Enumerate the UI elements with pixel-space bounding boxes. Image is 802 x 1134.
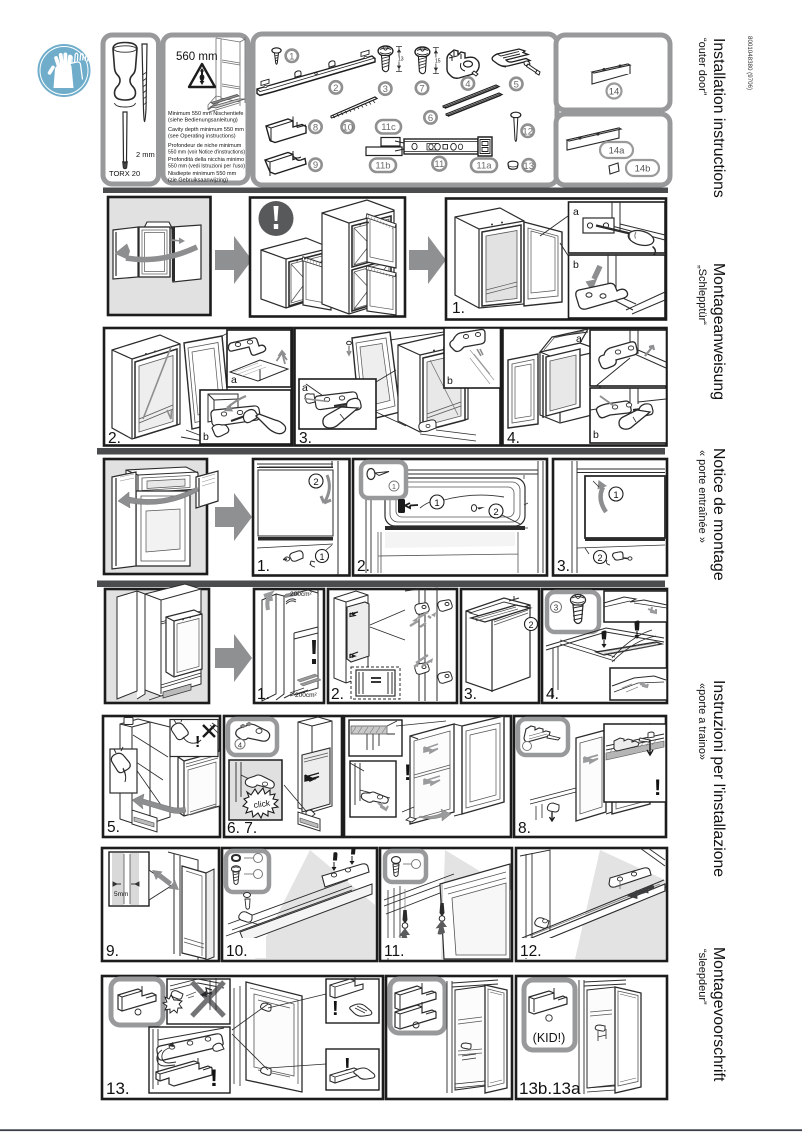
svg-text:8001048380 (9706): 8001048380 (9706) xyxy=(746,36,753,90)
svg-text:3.: 3. xyxy=(464,686,477,703)
svg-text:2.: 2. xyxy=(331,686,344,703)
svg-text:(KID!): (KID!) xyxy=(533,1031,566,1045)
svg-text:1: 1 xyxy=(289,51,294,62)
svg-text:!: ! xyxy=(195,734,200,751)
svg-text:“sleepdeur”: “sleepdeur” xyxy=(696,949,708,1005)
svg-text:14: 14 xyxy=(609,87,620,98)
svg-text:7: 7 xyxy=(419,83,424,94)
svg-text:10.: 10. xyxy=(226,943,248,960)
svg-text:(see Operating instructions): (see Operating instructions) xyxy=(168,134,236,140)
svg-text:“outer door”: “outer door” xyxy=(696,38,708,96)
svg-text:Instruzioni per l'installazion: Instruzioni per l'installazione xyxy=(710,680,727,877)
svg-text:2: 2 xyxy=(493,507,498,518)
svg-text:12: 12 xyxy=(522,126,533,137)
svg-text:a: a xyxy=(576,333,582,345)
svg-text:5: 5 xyxy=(514,79,519,90)
svg-text:13: 13 xyxy=(398,57,404,63)
svg-text:Profondeur de niche minimum: Profondeur de niche minimum xyxy=(168,143,242,149)
svg-text:11.: 11. xyxy=(384,943,404,960)
svg-text:9.: 9. xyxy=(106,943,119,960)
svg-text:1: 1 xyxy=(319,552,324,562)
svg-text:8.: 8. xyxy=(518,820,531,837)
svg-text:Montageanweisung: Montageanweisung xyxy=(710,263,727,400)
svg-text:Installation instructions: Installation instructions xyxy=(710,38,727,198)
svg-text:2: 2 xyxy=(528,620,533,630)
svg-text:13: 13 xyxy=(523,161,534,172)
svg-text:1: 1 xyxy=(392,484,396,491)
svg-text:b: b xyxy=(447,375,453,387)
svg-text:!: ! xyxy=(210,1065,218,1092)
svg-text:b: b xyxy=(593,429,599,441)
svg-text:550 mm (vedi Istruzioni per l': 550 mm (vedi Istruzioni per l'uso) xyxy=(168,164,245,170)
svg-text:2.: 2. xyxy=(108,430,121,447)
svg-text:3.: 3. xyxy=(299,430,312,447)
svg-text:1: 1 xyxy=(613,490,618,501)
svg-text:a: a xyxy=(231,374,237,386)
svg-text:5mm: 5mm xyxy=(114,891,128,898)
svg-text:« porte entraînée »: « porte entraînée » xyxy=(696,450,708,543)
svg-text:3: 3 xyxy=(383,84,388,95)
svg-text:Profondità della nicchia minim: Profondità della nicchia minimo xyxy=(168,157,244,163)
svg-text:6: 6 xyxy=(428,113,433,124)
svg-text:2.: 2. xyxy=(357,558,370,575)
svg-text:«porte a traino»: «porte a traino» xyxy=(696,683,708,760)
svg-text:4.: 4. xyxy=(546,686,559,703)
svg-text:1.: 1. xyxy=(257,686,270,703)
svg-text:6. 7.: 6. 7. xyxy=(227,820,257,837)
svg-text:9: 9 xyxy=(313,160,318,171)
svg-text:11c: 11c xyxy=(381,122,396,133)
svg-text:a: a xyxy=(302,382,308,394)
svg-text:14a: 14a xyxy=(609,146,626,157)
svg-text:11a: 11a xyxy=(476,161,492,172)
svg-text:1: 1 xyxy=(434,498,439,509)
svg-text:a: a xyxy=(573,206,579,218)
svg-text:„Schlepptür“: „Schlepptür“ xyxy=(696,265,708,325)
svg-text:!: ! xyxy=(654,775,661,800)
svg-text:Cavity depth minimum 550 mm: Cavity depth minimum 550 mm xyxy=(168,127,244,133)
svg-text:1.: 1. xyxy=(257,558,270,575)
svg-text:Montagevoorschrift: Montagevoorschrift xyxy=(710,947,727,1082)
svg-text:TORX 20: TORX 20 xyxy=(109,169,140,178)
svg-text:Nisdiepte minimum 550 mm: Nisdiepte minimum 550 mm xyxy=(168,171,237,177)
svg-text:14b: 14b xyxy=(635,164,651,175)
svg-text:!: ! xyxy=(332,998,339,1020)
svg-text:2: 2 xyxy=(313,477,318,488)
svg-text:2: 2 xyxy=(597,553,602,563)
svg-text:11b: 11b xyxy=(375,161,390,172)
svg-text:Minimum 550 mm Nischentiefe: Minimum 550 mm Nischentiefe xyxy=(168,111,244,117)
svg-text:4.: 4. xyxy=(507,430,520,447)
svg-text:3.: 3. xyxy=(557,558,570,575)
svg-text:4: 4 xyxy=(238,741,242,750)
svg-text:13.: 13. xyxy=(106,1079,130,1098)
svg-text:b: b xyxy=(203,431,209,443)
svg-text:5.: 5. xyxy=(107,819,120,836)
svg-text:b: b xyxy=(573,259,579,271)
svg-text:4: 4 xyxy=(465,79,470,90)
svg-text:560 mm: 560 mm xyxy=(176,51,218,63)
svg-text:3: 3 xyxy=(554,604,559,613)
svg-text:1.: 1. xyxy=(452,300,465,317)
svg-text:11: 11 xyxy=(434,159,444,170)
svg-text:13b.13a: 13b.13a xyxy=(519,1079,581,1098)
svg-text:200cm²: 200cm² xyxy=(295,692,318,699)
svg-text:15: 15 xyxy=(435,59,441,65)
svg-text:2 mm: 2 mm xyxy=(136,150,155,159)
svg-text:200cm²: 200cm² xyxy=(290,591,313,598)
svg-text:550 mm (voir Notice d'instruct: 550 mm (voir Notice d'instructions) xyxy=(168,150,245,156)
svg-text:(zie Gebruiksaanwijzing): (zie Gebruiksaanwijzing) xyxy=(168,178,228,184)
svg-text:(siehe Bedienungsanleitung): (siehe Bedienungsanleitung) xyxy=(168,118,238,124)
svg-text:Notice de montage: Notice de montage xyxy=(710,448,727,581)
svg-text:8: 8 xyxy=(313,122,318,133)
svg-text:12.: 12. xyxy=(520,943,542,960)
svg-text:10: 10 xyxy=(342,122,353,133)
svg-text:2: 2 xyxy=(333,83,338,94)
